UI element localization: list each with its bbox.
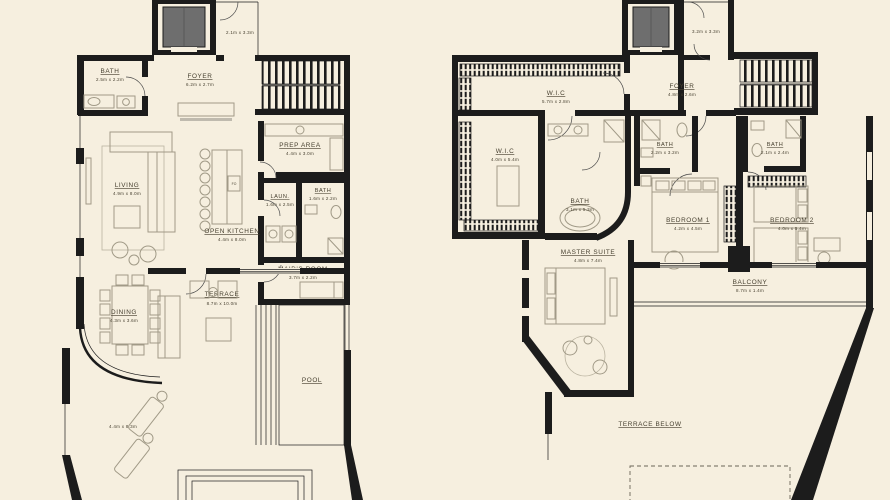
bedroom2-closet xyxy=(748,176,806,187)
staircase-upper xyxy=(734,52,818,115)
wic2-dims: 4.0m x 5.4m xyxy=(491,157,519,162)
laundry-dims: 1.6m x 2.5m xyxy=(266,202,294,207)
open-kitchen: FO OPEN KITCHEN 4.4m x 8.0m xyxy=(200,149,260,242)
side-terrace-dims: 4.4m x 8.3m xyxy=(109,424,137,429)
sunken-feature xyxy=(178,470,312,500)
open-kitchen-label: OPEN KITCHEN xyxy=(204,228,259,235)
dining-area: DINING 4.3m x 3.6m xyxy=(100,275,160,355)
bath-bed2-dims: 2.1m x 2.4m xyxy=(761,150,789,155)
balcony-dims: 8.7m x 1.4m xyxy=(736,288,764,293)
bath-bed1-dims: 2.2m x 3.2m xyxy=(651,150,679,155)
floor-plan-sheet: 2.1m x 3.3m BATH 2.5m x 2.2m xyxy=(0,0,890,500)
lounge-chair xyxy=(127,387,171,437)
floor-plans-canvas: 2.1m x 3.3m BATH 2.5m x 2.2m xyxy=(0,0,890,500)
side-terrace: 4.4m x 8.3m xyxy=(62,348,312,500)
balcony-label: BALCONY xyxy=(733,279,768,286)
bedroom2-label: BEDROOM 2 xyxy=(770,217,814,224)
pool: POOL xyxy=(256,305,344,445)
terrace-below-label: TERRACE BELOW xyxy=(618,421,682,428)
prep-area-dims: 4.4m x 3.0m xyxy=(286,151,314,156)
stair-landing-dims: 2.1m x 3.3m xyxy=(226,30,254,35)
master-suite-dims: 4.8m x 7.4m xyxy=(574,258,602,263)
terrace-dims: 8.7m x 10.0m xyxy=(207,301,238,306)
living-room: LIVING 4.9m x 8.0m xyxy=(86,132,175,265)
bath2-dims: 1.6m x 2.2m xyxy=(309,196,337,201)
wic-master: W.I.C 4.0m x 5.4m xyxy=(452,110,545,239)
feature-below-outline xyxy=(630,466,790,500)
master-suite-furniture xyxy=(545,268,617,376)
living-label: LIVING xyxy=(115,182,140,189)
bedroom1-label: BEDROOM 1 xyxy=(666,217,710,224)
dining-dims: 4.3m x 3.6m xyxy=(110,318,138,323)
bedroom1-dims: 4.2m x 4.5m xyxy=(674,226,702,231)
bath-dims: 2.5m x 2.2m xyxy=(96,77,124,82)
master-suite-label: MASTER SUITE xyxy=(561,249,615,256)
bedroom2: BEDROOM 2 4.0m x 5.4m xyxy=(749,116,873,268)
wic1-dims: 5.7m x 2.8m xyxy=(542,99,570,104)
lounge-chair xyxy=(113,429,157,479)
living-dims: 4.9m x 8.0m xyxy=(113,191,141,196)
foyer-lower: FOYER 6.2m x 2.7m xyxy=(178,73,234,121)
bath-bed1-label: BATH xyxy=(657,142,674,148)
stair-landing: 2.1m x 3.3m xyxy=(216,2,258,55)
elevator-upper xyxy=(622,0,680,55)
open-kitchen-dims: 4.4m x 8.0m xyxy=(218,237,246,242)
master-bath: BATH 3.1m x 5.3m xyxy=(545,110,631,240)
stair-room: 3.2m x 3.3m xyxy=(678,0,734,116)
foyer-upper-label: FOYER xyxy=(669,83,694,90)
bedroom1: BEDROOM 1 4.2m x 4.5m xyxy=(634,116,744,269)
upper-floor-plan: 3.2m x 3.3m W.I.C 5.7m x 2.8m FOYER 4.8m… xyxy=(452,0,874,500)
maids-room-dims: 3.7m x 2.2m xyxy=(289,275,317,280)
bedroom2-dims: 4.0m x 5.4m xyxy=(778,226,806,231)
pool-label: POOL xyxy=(302,377,322,384)
tv-console xyxy=(86,158,91,204)
kitchen-appliance-tag: FO xyxy=(232,182,237,186)
laundry-label: LAUN. xyxy=(271,194,290,200)
prep-area: PREP AREA 4.4m x 3.0m xyxy=(258,115,350,178)
master-suite: MASTER SUITE 4.8m x 7.4m xyxy=(522,240,634,397)
master-bath-dims: 3.1m x 5.3m xyxy=(566,207,594,212)
foyer-dims: 6.2m x 2.7m xyxy=(186,82,214,87)
stair-room-dims: 3.2m x 3.3m xyxy=(692,29,720,34)
bath-bedroom2: BATH 2.1m x 2.4m xyxy=(742,116,806,190)
foyer-upper-dims: 4.8m x 2.6m xyxy=(668,92,696,97)
master-bath-label: BATH xyxy=(571,198,590,205)
dining-label: DINING xyxy=(111,309,137,316)
bath-service: BATH 1.6m x 2.2m xyxy=(305,188,343,254)
staircase-lower xyxy=(255,55,350,115)
living-furniture xyxy=(86,132,175,265)
bath-lower: BATH 2.5m x 2.2m xyxy=(84,68,135,108)
wic2-label: W.I.C xyxy=(496,148,515,155)
bar-stools xyxy=(200,149,210,231)
foyer-label: FOYER xyxy=(187,73,212,80)
wic1-label: W.I.C xyxy=(547,90,566,97)
bedroom2-furniture xyxy=(754,186,840,264)
foyer-bench xyxy=(178,103,234,116)
elevator-lower xyxy=(152,0,216,55)
bath2-label: BATH xyxy=(315,188,332,194)
terrace-below: TERRACE BELOW xyxy=(545,308,874,500)
bath-bed2-label: BATH xyxy=(767,142,784,148)
bath-fixtures xyxy=(84,95,135,108)
lower-floor-plan: 2.1m x 3.3m BATH 2.5m x 2.2m xyxy=(62,0,363,500)
prep-area-label: PREP AREA xyxy=(279,142,321,149)
laundry-room: LAUN. 1.6m x 2.5m xyxy=(266,194,296,242)
bath-label: BATH xyxy=(101,68,120,75)
